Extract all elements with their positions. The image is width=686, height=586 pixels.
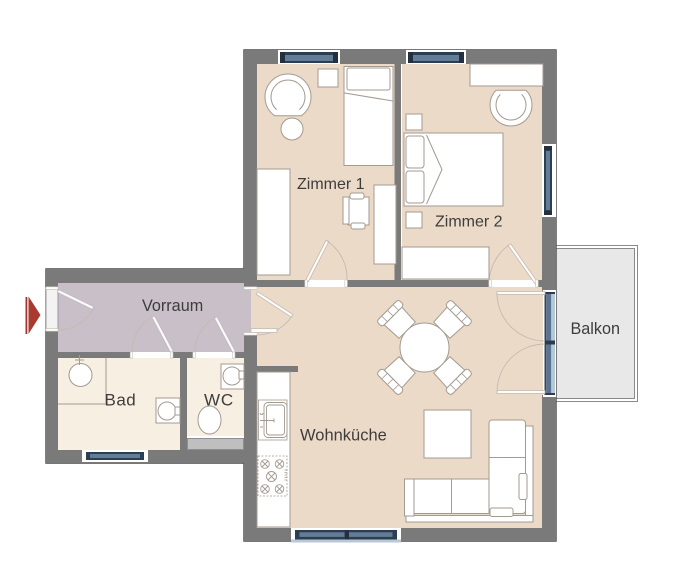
svg-text:Balkon: Balkon xyxy=(571,320,621,338)
svg-text:Zimmer 1: Zimmer 1 xyxy=(297,176,365,193)
svg-text:Vorraum: Vorraum xyxy=(142,297,203,315)
svg-text:Wohnküche: Wohnküche xyxy=(300,427,387,445)
svg-text:WC: WC xyxy=(204,391,234,410)
svg-text:Zimmer 2: Zimmer 2 xyxy=(435,214,503,231)
svg-text:Bad: Bad xyxy=(105,391,137,410)
